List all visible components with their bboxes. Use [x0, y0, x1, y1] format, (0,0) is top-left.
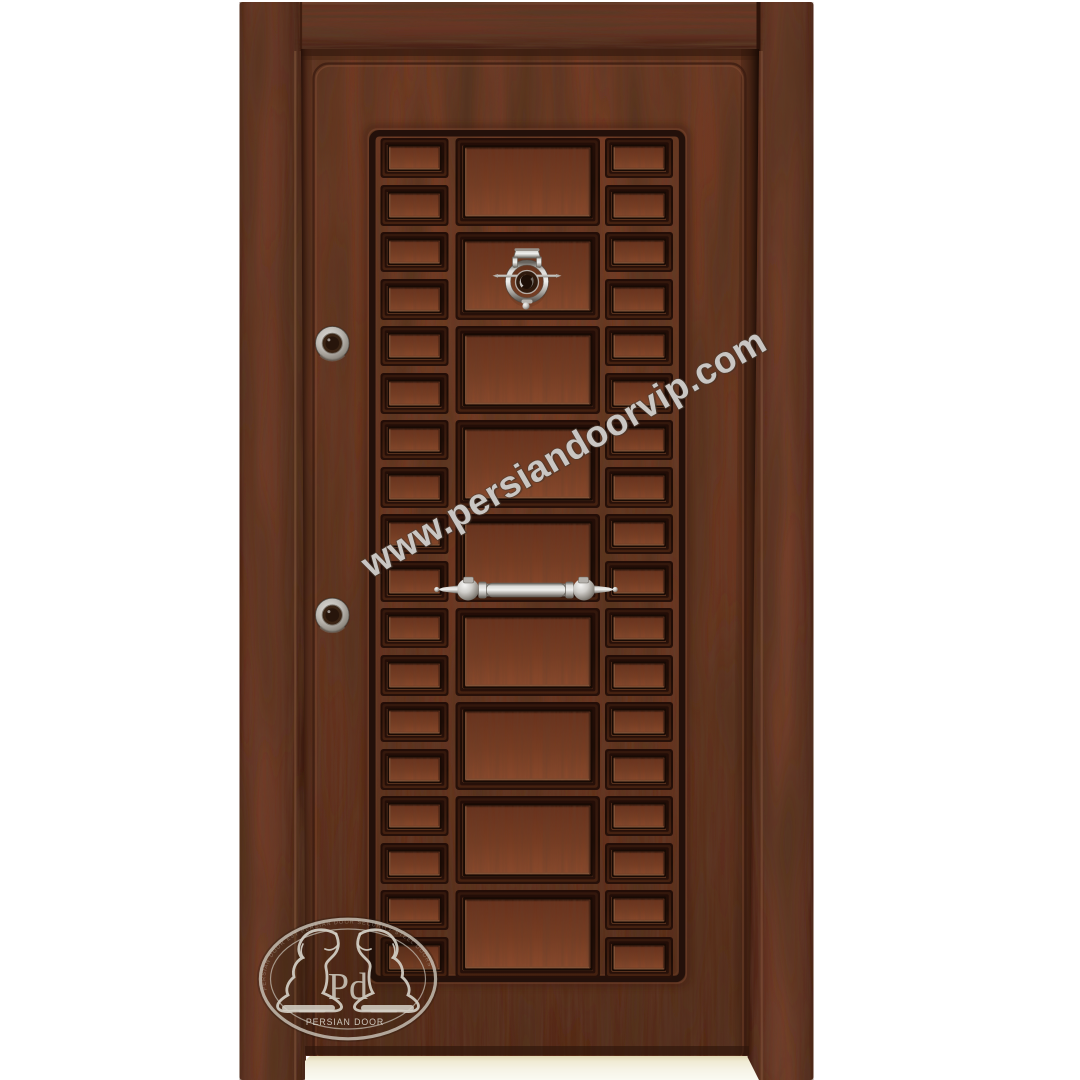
svg-text:PERSIAN DOOR: PERSIAN DOOR: [306, 1017, 384, 1027]
svg-text:Pd: Pd: [328, 966, 368, 1008]
